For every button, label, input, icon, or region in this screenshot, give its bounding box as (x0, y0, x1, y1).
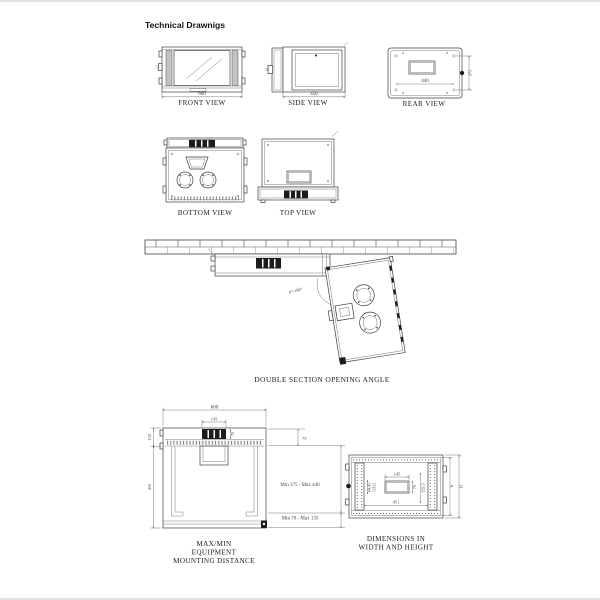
mounting-body (160, 428, 267, 528)
technical-drawing-page: Technical Drawnigs 600 (0, 0, 600, 600)
open-section-cable-plate (335, 303, 354, 320)
mounting-caption-line2: EQUIPMENT (192, 549, 237, 557)
opening-angle-annotation: 0°-180° (288, 279, 333, 307)
bottom-view-label: BOTTOM VIEW (178, 209, 233, 217)
front-view: 600 FRONT VIEW (157, 47, 245, 107)
bottom-view: BOTTOM VIEW (163, 138, 247, 217)
mounting-overall-width-dim: 600 (211, 405, 219, 410)
wh-inner-height-label: h (449, 484, 454, 487)
top-view-label: TOP VIEW (280, 209, 316, 217)
front-view-label: FRONT VIEW (178, 99, 225, 107)
side-view-label: SIDE VIEW (288, 99, 328, 107)
front-left-vent-strip (166, 51, 172, 86)
front-right-vent-strip (232, 51, 238, 86)
wh-cutout-width-dim: 145 (394, 472, 401, 477)
width-height-diagram: 145 70 129.5 44.45 [1U] 451 h H DIMENSIO… (346, 455, 464, 552)
wh-inner-width-dim: 451 (393, 500, 400, 505)
wh-body (346, 455, 447, 518)
top-view: TOP VIEW (258, 132, 338, 218)
wh-lock-knob (346, 484, 351, 489)
mounting-caption-line1: MAX/MIN (196, 540, 232, 548)
open-section-latch (339, 357, 346, 365)
rear-view-label: REAR VIEW (403, 100, 446, 108)
wh-caption-line2: WIDTH AND HEIGHT (358, 544, 433, 552)
opening-angle-range: 0°-180° (288, 286, 303, 294)
bottom-view-body (163, 148, 247, 202)
front-view-body (162, 47, 242, 92)
swung-open-section (321, 256, 408, 365)
rear-view-body (388, 48, 464, 98)
brick-wall (145, 240, 456, 254)
mounting-distance-diagram: 600 145 70 150 450 75 Min 375 - Max 440 (147, 405, 345, 565)
opening-angle-diagram: 0°-180° (145, 240, 456, 384)
opening-diagram-label: DOUBLE SECTION OPENING ANGLE (254, 375, 389, 384)
mounting-equipment-range-dim: Min 375 - Max 440 (280, 483, 320, 488)
side-view-body (266, 42, 348, 92)
wh-diagonal-dim: 129.5 (420, 482, 425, 493)
bottom-view-rear-band (164, 138, 246, 148)
side-view-dim: 450 (283, 92, 345, 98)
mounting-roof-height-dim: 150 (147, 433, 152, 440)
front-width-dim: 600 (198, 92, 206, 97)
side-lock-dot (315, 55, 317, 57)
rear-hole-height-dim: 375 (468, 69, 473, 76)
page-title: Technical Drawnigs (145, 20, 225, 30)
side-wall-bracket (272, 48, 283, 92)
side-depth-dim: 450 (310, 92, 318, 97)
top-view-rear-band (258, 187, 338, 203)
mounting-body-height-dim: 450 (147, 483, 152, 490)
rear-hole-width-dim: 440 (421, 79, 429, 84)
wh-rack-unit-label: [1U] (371, 483, 376, 492)
side-view: 450 SIDE VIEW (266, 42, 348, 107)
top-view-body (262, 132, 338, 188)
wh-caption-line1: DIMENSIONS IN (367, 535, 426, 543)
drawing-canvas: Technical Drawnigs 600 (0, 0, 600, 600)
mounting-bottom-range-dim: Min 70 - Max 135 (282, 517, 319, 522)
front-view-dim: 600 (162, 92, 242, 98)
rear-lock-knob (460, 71, 464, 75)
mounting-vent-width-dim: 145 (211, 416, 218, 421)
rear-view: 440 375 REAR VIEW (388, 48, 473, 108)
mounting-top-clearance-dim: 75 (302, 436, 307, 441)
mounting-caption-line3: MOUNTING DISTANCE (173, 557, 255, 565)
